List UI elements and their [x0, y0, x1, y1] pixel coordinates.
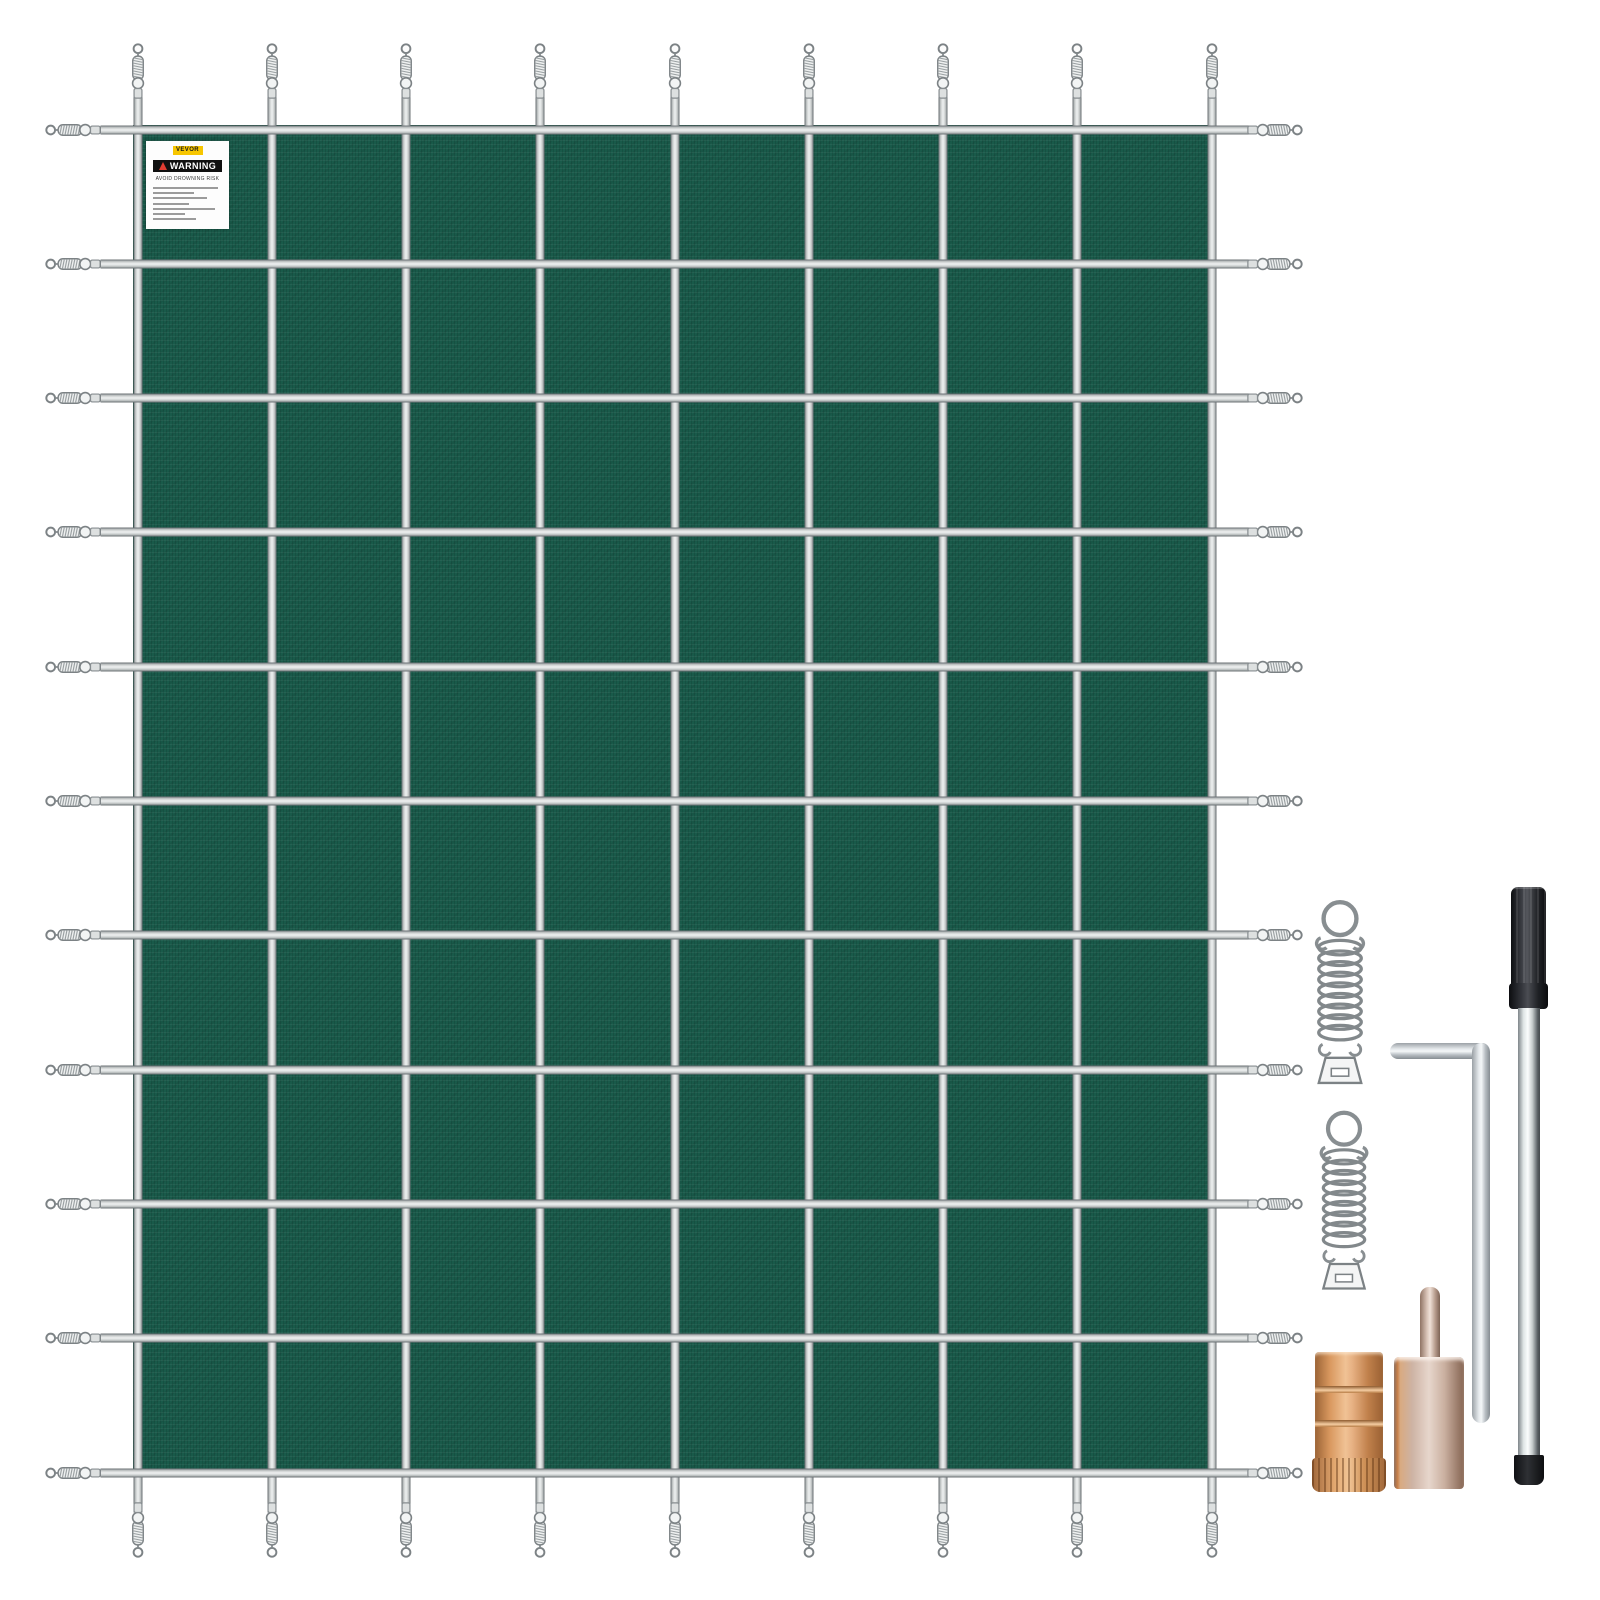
warning-banner: WARNING [153, 160, 222, 172]
cover-strap [101, 528, 1249, 536]
brass-anchor-groove [1315, 1386, 1383, 1393]
cover-spring-icon [798, 43, 820, 99]
cover-strap [101, 1334, 1249, 1342]
tension-spring-icon [1315, 1108, 1373, 1301]
cover-strap [101, 931, 1249, 939]
cover-spring-icon [1247, 790, 1303, 812]
brass-anchor-body [1315, 1352, 1383, 1460]
cover-spring-icon [932, 43, 954, 99]
cover-spring-icon [1201, 1502, 1223, 1558]
cover-spring-icon [1247, 1059, 1303, 1081]
cover-spring-icon [45, 1193, 101, 1215]
warning-fine-print [153, 187, 222, 220]
rod-collar [1509, 983, 1548, 1009]
tension-spring-icon [1311, 896, 1369, 1097]
cover-spring-icon [395, 1502, 417, 1558]
fine-print-line [153, 208, 215, 210]
cover-spring-icon [261, 43, 283, 99]
cover-spring-icon [1247, 1193, 1303, 1215]
brass-anchor-groove [1315, 1420, 1383, 1427]
cover-spring-icon [529, 1502, 551, 1558]
cover-spring-icon [1066, 43, 1088, 99]
warning-subheading: AVOID DROWNING RISK [146, 176, 229, 182]
cover-spring-icon [395, 43, 417, 99]
cover-spring-icon [45, 790, 101, 812]
cover-strap [101, 1469, 1249, 1477]
cover-spring-icon [1201, 43, 1223, 99]
cover-strap [101, 260, 1249, 268]
anchor-pin [1420, 1287, 1440, 1361]
hex-key-long-arm [1472, 1043, 1490, 1423]
fine-print-line [153, 197, 207, 199]
cover-spring-icon [1247, 1462, 1303, 1484]
warning-heading: WARNING [170, 161, 216, 171]
fine-print-line [153, 213, 185, 215]
fine-print-line [153, 218, 196, 220]
cover-spring-icon [1247, 924, 1303, 946]
vevor-logo: VEVOR [173, 146, 203, 155]
cover-spring-icon [1247, 253, 1303, 275]
fine-print-line [153, 203, 189, 205]
cover-spring-icon [261, 1502, 283, 1558]
cover-spring-icon [45, 253, 101, 275]
cover-spring-icon [45, 924, 101, 946]
cover-spring-icon [45, 1327, 101, 1349]
cover-spring-icon [1247, 656, 1303, 678]
cover-strap [101, 797, 1249, 805]
rod-shaft [1518, 1008, 1540, 1460]
cover-strap [101, 1066, 1249, 1074]
cover-spring-icon [1247, 119, 1303, 141]
warning-label: VEVOR WARNING AVOID DROWNING RISK [146, 141, 229, 229]
cover-spring-icon [127, 1502, 149, 1558]
cover-spring-icon [45, 119, 101, 141]
cover-spring-icon [45, 656, 101, 678]
warning-triangle-icon [159, 162, 167, 170]
cover-spring-icon [45, 387, 101, 409]
cover-strap [101, 126, 1249, 134]
cover-spring-icon [932, 1502, 954, 1558]
rod-grip [1511, 887, 1546, 987]
cover-strap [101, 394, 1249, 402]
fine-print-line [153, 192, 194, 194]
cover-spring-icon [529, 43, 551, 99]
cover-strap [101, 1200, 1249, 1208]
brass-anchor-knurled-base [1312, 1458, 1386, 1492]
cover-spring-icon [1247, 1327, 1303, 1349]
cover-spring-icon [45, 1059, 101, 1081]
product-photo-pool-safety-cover: VEVOR WARNING AVOID DROWNING RISK [0, 0, 1600, 1600]
cover-spring-icon [45, 1462, 101, 1484]
cover-spring-icon [127, 43, 149, 99]
cover-spring-icon [1247, 387, 1303, 409]
cover-spring-icon [45, 521, 101, 543]
pin-anchor-body [1394, 1357, 1464, 1489]
cover-spring-icon [798, 1502, 820, 1558]
fine-print-line [153, 187, 218, 189]
cover-spring-icon [1247, 521, 1303, 543]
cover-spring-icon [664, 43, 686, 99]
cover-spring-icon [664, 1502, 686, 1558]
rod-tip [1514, 1455, 1544, 1485]
cover-strap [101, 663, 1249, 671]
cover-spring-icon [1066, 1502, 1088, 1558]
